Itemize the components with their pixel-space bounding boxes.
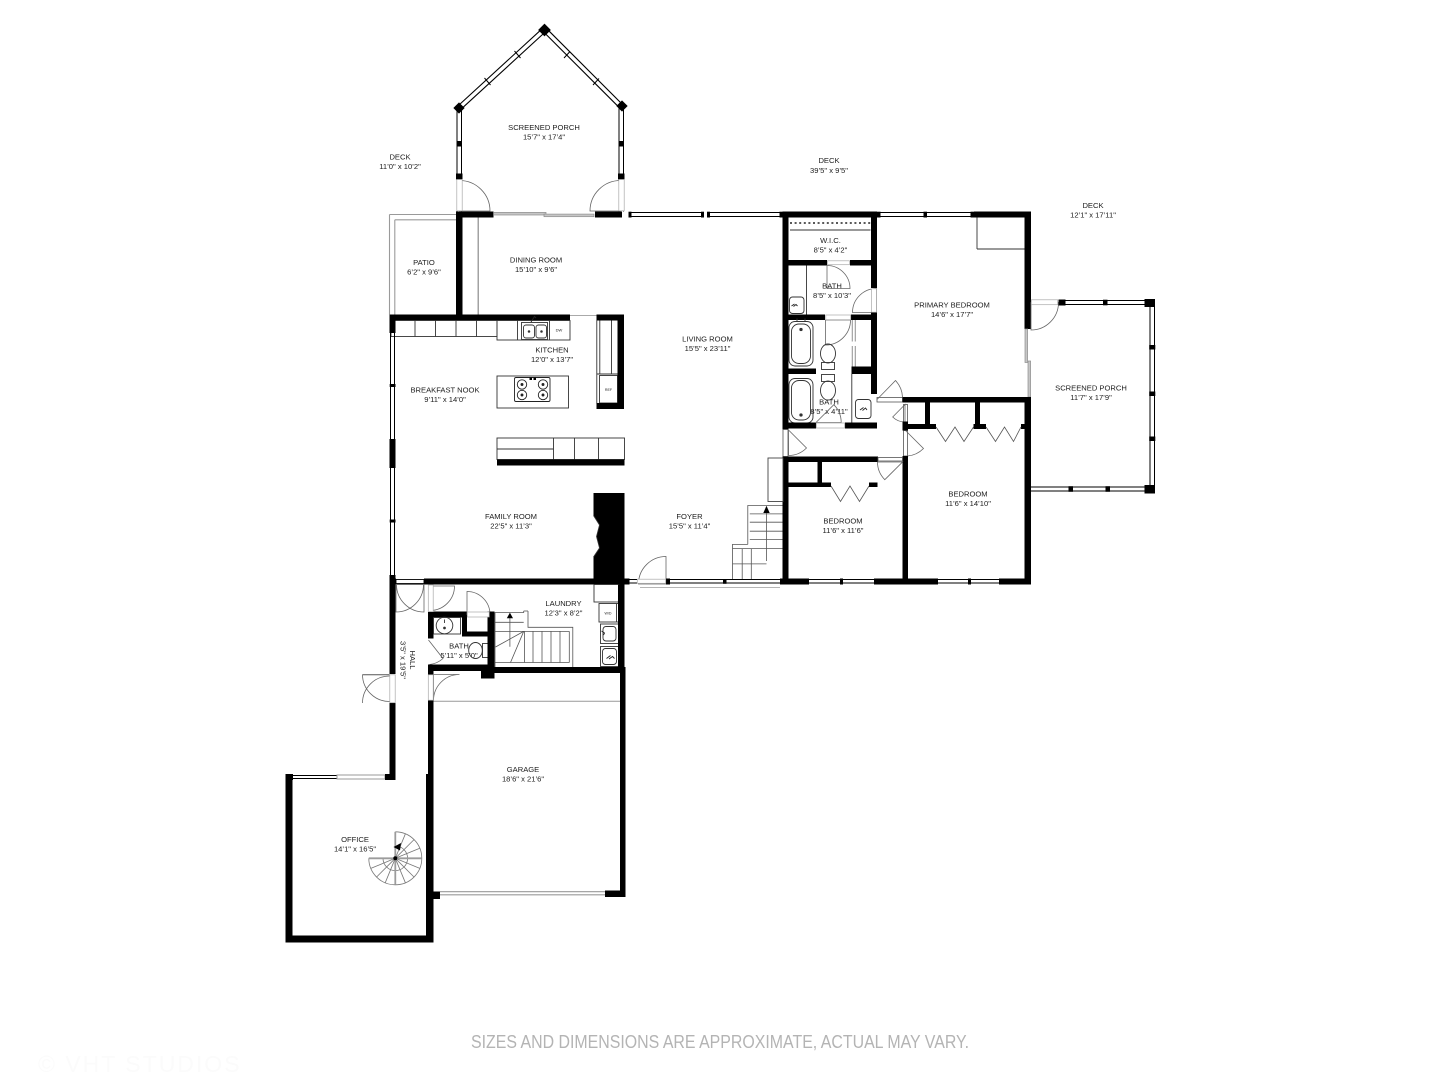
svg-text:BATH: BATH xyxy=(819,398,839,407)
svg-text:FOYER: FOYER xyxy=(676,512,703,521)
svg-text:REF: REF xyxy=(605,388,613,392)
svg-text:DINING ROOM: DINING ROOM xyxy=(510,256,562,265)
svg-text:8’5" x 10’3": 8’5" x 10’3" xyxy=(813,291,851,300)
svg-text:HALL: HALL xyxy=(408,651,417,670)
svg-text:12’0" x 13’7": 12’0" x 13’7" xyxy=(531,355,573,364)
svg-text:DW: DW xyxy=(556,328,563,333)
svg-text:39’5" x 9’5": 39’5" x 9’5" xyxy=(810,166,848,175)
svg-text:22’5" x 11’3": 22’5" x 11’3" xyxy=(490,522,532,531)
svg-text:15’5" x 11’4": 15’5" x 11’4" xyxy=(669,522,711,531)
svg-text:GARAGE: GARAGE xyxy=(507,765,540,774)
svg-text:5’11" x 5’0": 5’11" x 5’0" xyxy=(440,651,478,660)
svg-text:BEDROOM: BEDROOM xyxy=(948,490,987,499)
svg-text:SIZES AND DIMENSIONS ARE APPRO: SIZES AND DIMENSIONS ARE APPROXIMATE, AC… xyxy=(471,1031,969,1052)
svg-text:8’5" x 4’2": 8’5" x 4’2" xyxy=(814,246,848,255)
svg-text:W.I.C.: W.I.C. xyxy=(820,236,841,245)
svg-text:BREAKFAST NOOK: BREAKFAST NOOK xyxy=(410,386,479,395)
svg-text:11’7" x 17’9": 11’7" x 17’9" xyxy=(1070,393,1112,402)
svg-text:LAUNDRY: LAUNDRY xyxy=(545,599,581,608)
svg-text:LIVING ROOM: LIVING ROOM xyxy=(682,335,733,344)
svg-text:3’5" x 19’5": 3’5" x 19’5" xyxy=(399,641,408,679)
svg-text:15’5" x 23’11": 15’5" x 23’11" xyxy=(685,344,731,353)
svg-text:15’10" x 9’6": 15’10" x 9’6" xyxy=(515,265,557,274)
svg-text:KITCHEN: KITCHEN xyxy=(535,346,568,355)
svg-text:14’1" x 16’5": 14’1" x 16’5" xyxy=(334,845,376,854)
svg-text:8’5" x 4’11": 8’5" x 4’11" xyxy=(810,407,848,416)
svg-text:15’7" x 17’4": 15’7" x 17’4" xyxy=(523,133,565,142)
svg-text:SCREENED PORCH: SCREENED PORCH xyxy=(508,123,580,132)
svg-text:14’6" x 17’7": 14’6" x 17’7" xyxy=(931,310,973,319)
svg-text:BATH: BATH xyxy=(449,642,469,651)
svg-text:6’2" x 9’6": 6’2" x 9’6" xyxy=(407,268,441,277)
svg-text:DECK: DECK xyxy=(389,153,410,162)
svg-text:12’1" x 17’11": 12’1" x 17’11" xyxy=(1070,211,1116,220)
svg-text:11’6" x 11’6": 11’6" x 11’6" xyxy=(823,526,864,535)
svg-text:DECK: DECK xyxy=(818,156,839,165)
svg-text:OFFICE: OFFICE xyxy=(341,835,369,844)
svg-text:PRIMARY BEDROOM: PRIMARY BEDROOM xyxy=(914,301,990,310)
svg-text:11’6" x 14’10": 11’6" x 14’10" xyxy=(945,499,991,508)
svg-text:18’6" x 21’6": 18’6" x 21’6" xyxy=(502,775,544,784)
svg-text:FAMILY ROOM: FAMILY ROOM xyxy=(485,512,537,521)
svg-text:BATH: BATH xyxy=(822,282,842,291)
svg-text:W/D: W/D xyxy=(605,612,612,616)
svg-text:© VHT STUDIOS: © VHT STUDIOS xyxy=(38,1051,242,1077)
svg-text:9’11" x 14’0": 9’11" x 14’0" xyxy=(424,395,466,404)
svg-text:SCREENED PORCH: SCREENED PORCH xyxy=(1055,384,1127,393)
svg-text:BEDROOM: BEDROOM xyxy=(823,517,862,526)
svg-text:DECK: DECK xyxy=(1082,201,1103,210)
svg-text:PATIO: PATIO xyxy=(413,258,435,267)
svg-text:11’0" x 10’2": 11’0" x 10’2" xyxy=(379,162,421,171)
svg-text:12’3" x 8’2": 12’3" x 8’2" xyxy=(545,609,583,618)
